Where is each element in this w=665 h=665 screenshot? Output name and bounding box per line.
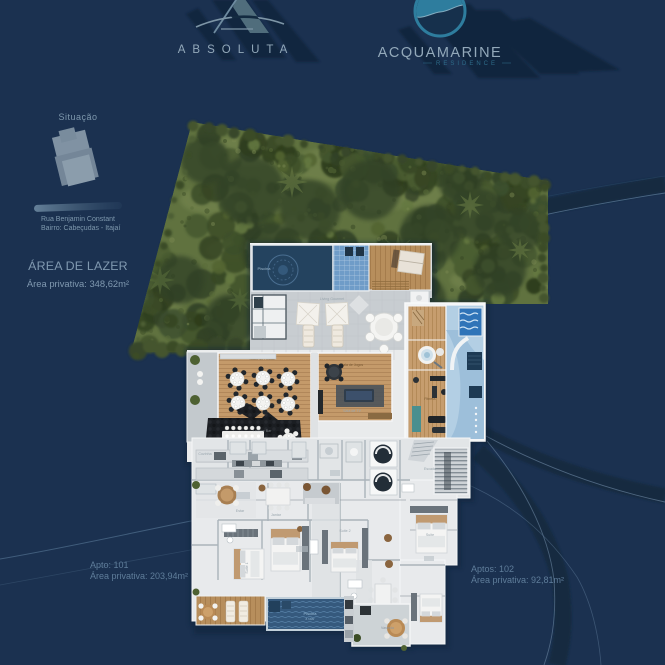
svg-text:Piscina: Piscina: [258, 266, 272, 271]
svg-text:Piscina: Piscina: [304, 611, 318, 616]
svg-text:Cozinha: Cozinha: [198, 452, 211, 456]
svg-text:Suite 1: Suite 1: [245, 562, 249, 573]
svg-text:ÁREA DE LAZER: ÁREA DE LAZER: [28, 258, 128, 273]
svg-text:Jantar: Jantar: [271, 513, 282, 517]
svg-text:Situação: Situação: [58, 112, 97, 122]
svg-text:Sala de TV: Sala de TV: [343, 409, 361, 413]
svg-text:Estar: Estar: [236, 509, 245, 513]
svg-text:Área privativa: 203,94m²: Área privativa: 203,94m²: [90, 571, 188, 581]
svg-text:Varanda: Varanda: [381, 626, 394, 630]
svg-text:a raiar: a raiar: [305, 617, 315, 621]
svg-text:Lounge Bar: Lounge Bar: [253, 429, 272, 433]
svg-text:ABSOLUTA: ABSOLUTA: [178, 44, 295, 56]
svg-text:RESIDENCE: RESIDENCE: [436, 61, 498, 67]
svg-text:Rua Benjamin Constant: Rua Benjamin Constant: [41, 216, 115, 223]
svg-text:Escada: Escada: [424, 467, 436, 471]
svg-text:Área privativa: 92,81m²: Área privativa: 92,81m²: [471, 575, 564, 585]
svg-text:Bairro: Cabeçudas - Itajaí: Bairro: Cabeçudas - Itajaí: [41, 225, 120, 232]
svg-text:Suite 2: Suite 2: [339, 529, 350, 533]
svg-text:Área privativa: 348,62m²: Área privativa: 348,62m²: [27, 278, 129, 289]
svg-text:Sala de Jogos: Sala de Jogos: [341, 363, 363, 367]
svg-text:Living Gourmet: Living Gourmet: [320, 297, 344, 301]
svg-text:Suite: Suite: [426, 533, 434, 537]
svg-text:Apto: 101: Apto: 101: [90, 560, 129, 570]
svg-text:ACQUAMARINE: ACQUAMARINE: [378, 45, 502, 61]
svg-text:Aptos: 102: Aptos: 102: [471, 564, 514, 574]
